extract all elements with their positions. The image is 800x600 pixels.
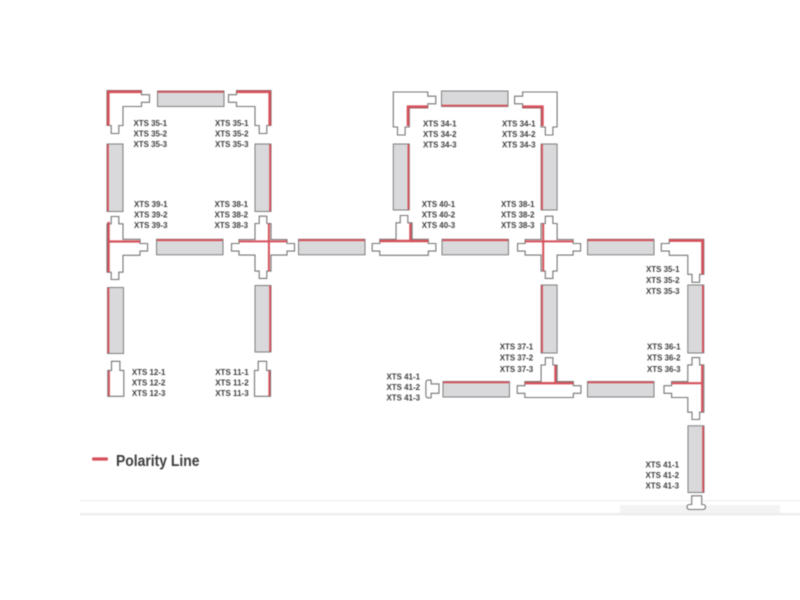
svg-text:XTS 41-1: XTS 41-1 [387,371,421,381]
svg-text:XTS 38-1: XTS 38-1 [215,199,249,209]
svg-text:XTS 40-2: XTS 40-2 [422,209,456,219]
svg-text:XTS 35-1: XTS 35-1 [215,118,249,128]
svg-text:Polarity Line: Polarity Line [116,453,200,470]
svg-text:XTS 36-1: XTS 36-1 [647,341,681,351]
svg-text:XTS 39-1: XTS 39-1 [134,199,168,209]
svg-text:XTS 40-3: XTS 40-3 [422,220,456,230]
svg-text:XTS 38-2: XTS 38-2 [501,209,535,219]
svg-text:XTS 34-1: XTS 34-1 [502,118,536,128]
svg-text:XTS 35-2: XTS 35-2 [134,128,168,138]
svg-text:XTS 12-2: XTS 12-2 [132,377,166,387]
svg-text:XTS 37-1: XTS 37-1 [500,341,534,351]
svg-text:XTS 34-2: XTS 34-2 [423,129,457,139]
svg-text:XTS 41-3: XTS 41-3 [387,392,421,402]
svg-text:XTS 41-2: XTS 41-2 [387,382,421,392]
svg-text:XTS 38-2: XTS 38-2 [215,209,249,219]
svg-text:XTS 35-3: XTS 35-3 [646,286,680,296]
svg-text:XTS 12-1: XTS 12-1 [132,367,166,377]
svg-text:XTS 34-1: XTS 34-1 [423,118,457,128]
svg-text:XTS 39-3: XTS 39-3 [134,220,168,230]
svg-text:XTS 34-3: XTS 34-3 [502,139,536,149]
svg-text:XTS 36-2: XTS 36-2 [647,353,681,363]
svg-text:XTS 35-3: XTS 35-3 [215,139,249,149]
svg-text:XTS 35-2: XTS 35-2 [215,128,249,138]
svg-text:XTS 38-1: XTS 38-1 [501,199,535,209]
svg-text:XTS 40-1: XTS 40-1 [422,199,456,209]
svg-text:XTS 35-3: XTS 35-3 [134,139,168,149]
svg-text:XTS 38-3: XTS 38-3 [501,220,535,230]
svg-text:XTS 41-3: XTS 41-3 [646,480,680,490]
svg-text:XTS 12-3: XTS 12-3 [132,388,166,398]
svg-text:XTS 39-2: XTS 39-2 [134,209,168,219]
svg-text:XTS 41-2: XTS 41-2 [646,470,680,480]
svg-text:XTS 35-2: XTS 35-2 [646,275,680,285]
svg-text:XTS 11-3: XTS 11-3 [215,388,249,398]
svg-text:XTS 37-3: XTS 37-3 [500,364,534,374]
svg-text:XTS 37-2: XTS 37-2 [500,353,534,363]
svg-text:XTS 35-1: XTS 35-1 [134,118,168,128]
svg-text:XTS 38-3: XTS 38-3 [215,220,249,230]
svg-text:XTS 34-3: XTS 34-3 [423,139,457,149]
svg-text:XTS 36-3: XTS 36-3 [647,364,681,374]
svg-text:XTS 35-1: XTS 35-1 [646,264,680,274]
svg-text:XTS 34-2: XTS 34-2 [502,129,536,139]
svg-text:XTS 11-1: XTS 11-1 [215,367,249,377]
svg-text:XTS 11-2: XTS 11-2 [215,377,249,387]
svg-text:XTS 41-1: XTS 41-1 [646,459,680,469]
